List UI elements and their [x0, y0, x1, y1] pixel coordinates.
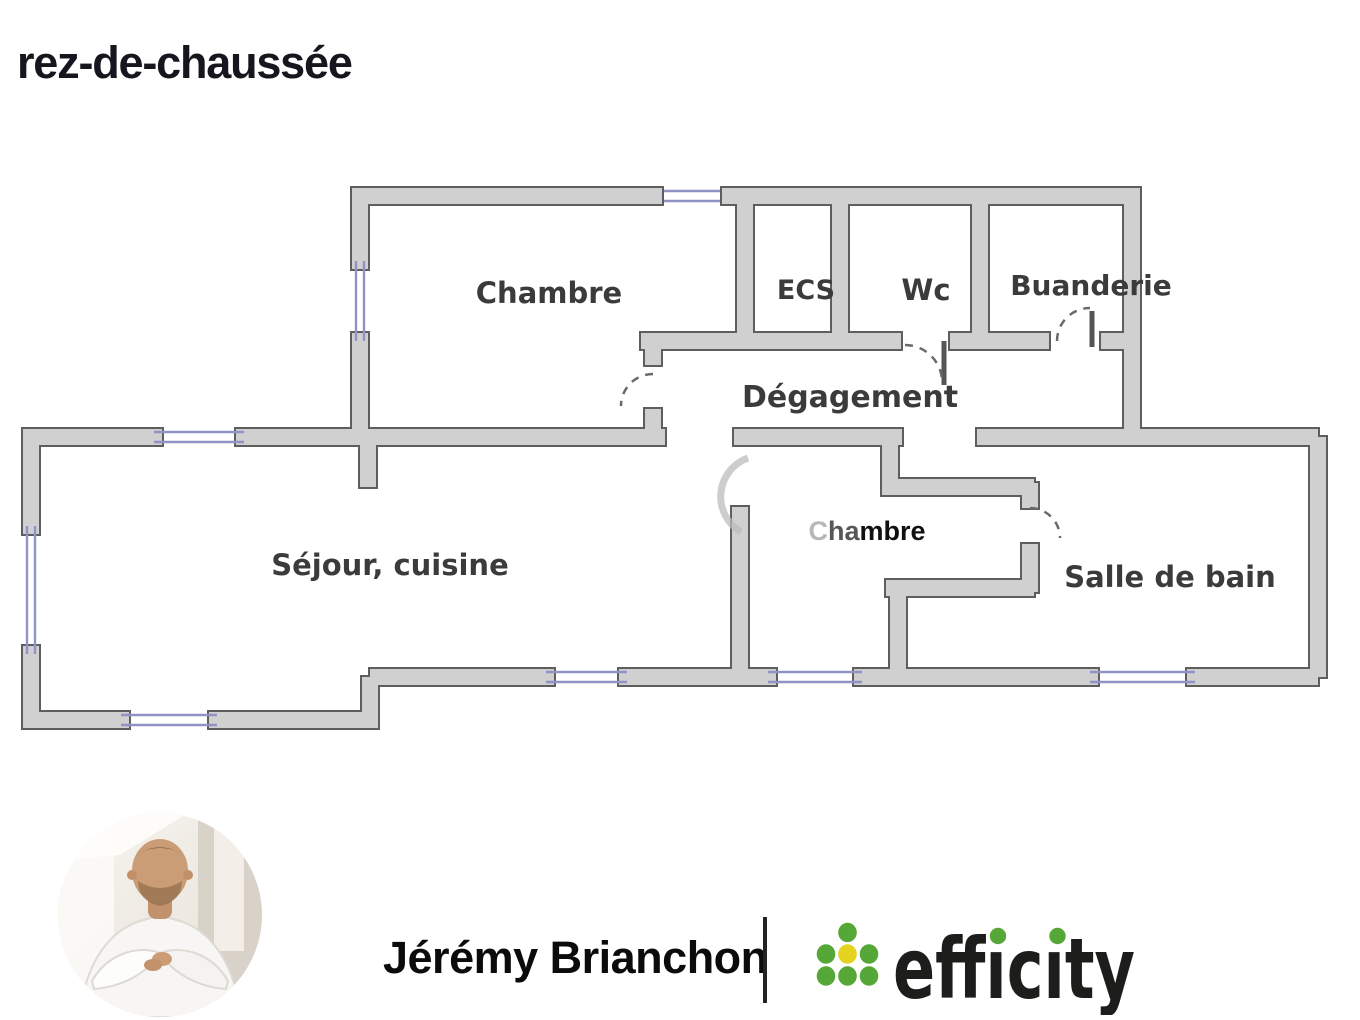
room-label-chambre-1: Chambre — [476, 276, 622, 310]
room-label-buanderie: Buanderie — [1010, 269, 1172, 302]
room-label-sejour-cuisine: Séjour, cuisine — [271, 548, 509, 582]
room-label-degagement: Dégagement — [742, 380, 958, 415]
room-label-ecs: ECS — [777, 275, 835, 306]
agent-portrait-illustration — [58, 813, 262, 1017]
page-title: rez-de-chaussée — [17, 40, 352, 85]
room-label-salle-de-bain: Salle de bain — [1064, 560, 1276, 594]
floor-plan: Chambre ECS Wc Buanderie Dégagement Cham… — [0, 120, 1360, 745]
agent-photo — [58, 813, 262, 1017]
efficity-wordmark: effıcıty — [893, 920, 1135, 1015]
room-label-wc: Wc — [901, 273, 950, 307]
efficity-yellow-dot — [838, 944, 857, 964]
footer-divider — [763, 917, 767, 1003]
efficity-logo: effıcıty — [805, 915, 1150, 1015]
agent-name: Jérémy Brianchon — [383, 934, 768, 982]
room-label-chambre-2: Chambre — [808, 516, 925, 546]
